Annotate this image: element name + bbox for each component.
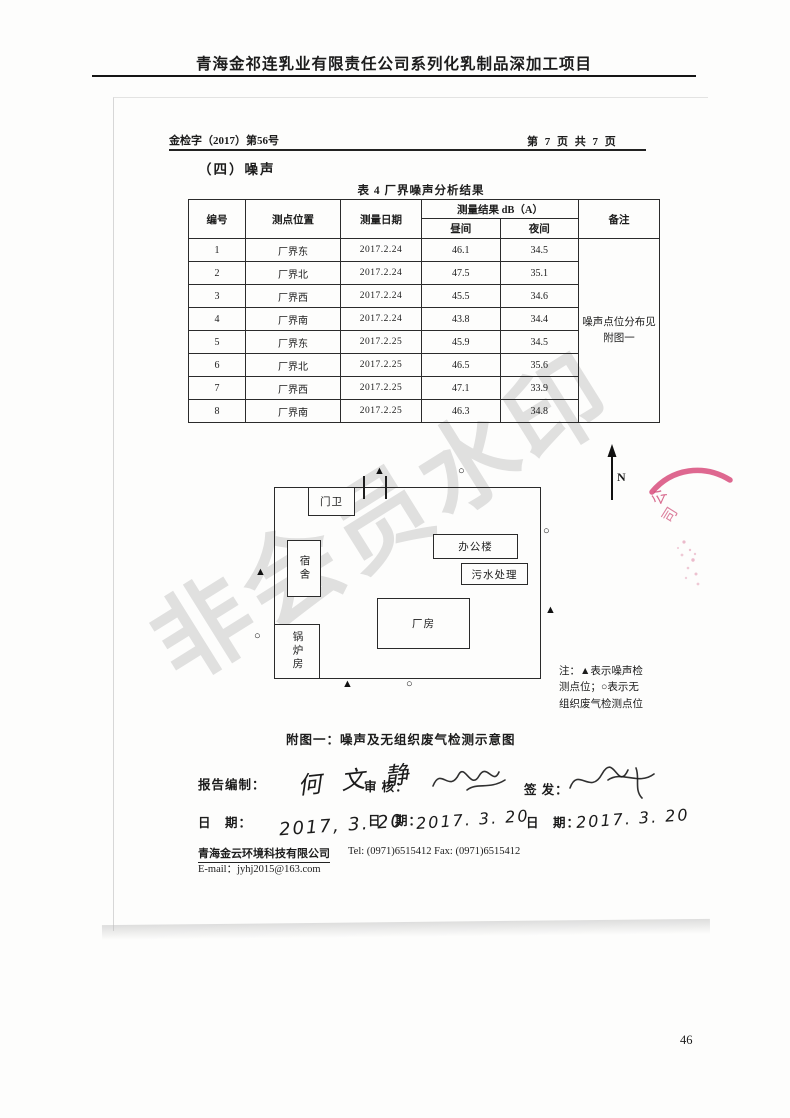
building-workshop: 厂房 — [377, 598, 470, 649]
cell-no: 4 — [189, 308, 246, 331]
col-header-night: 夜间 — [500, 219, 579, 239]
cell-day: 46.5 — [422, 354, 501, 377]
cell-no: 7 — [189, 377, 246, 400]
cell-night: 34.8 — [500, 400, 579, 423]
col-header-remark: 备注 — [579, 200, 660, 239]
cell-date: 2017.2.25 — [341, 377, 422, 400]
cell-no: 2 — [189, 262, 246, 285]
sewage-label: 污水处理 — [472, 567, 518, 582]
workshop-label: 厂房 — [412, 616, 435, 631]
cell-no: 1 — [189, 239, 246, 262]
noise-point-icon: ▲ — [545, 605, 556, 616]
cell-day: 45.5 — [422, 285, 501, 308]
cell-day: 47.1 — [422, 377, 501, 400]
building-gatehouse: 门卫 — [308, 487, 355, 516]
noise-analysis-table: 编号 测点位置 测量日期 测量结果 dB（A） 备注 昼间 夜间 1 厂界东 2… — [188, 199, 660, 423]
dormitory-label: 宿舍 — [297, 555, 312, 582]
date-label: 日 期： — [368, 810, 422, 829]
reviewer-label: 审 核： — [364, 776, 409, 795]
cell-date: 2017.2.24 — [341, 239, 422, 262]
cell-position: 厂界北 — [246, 354, 341, 377]
project-title: 青海金祁连乳业有限责任公司系列化乳制品深加工项目 — [92, 52, 696, 74]
red-seal-stamp: 公 司 — [638, 460, 790, 600]
cell-position: 厂界东 — [246, 331, 341, 354]
reviewer-signature — [427, 760, 513, 802]
cell-date: 2017.2.24 — [341, 308, 422, 331]
cell-day: 46.3 — [422, 400, 501, 423]
gate-bar — [385, 476, 387, 499]
office-label: 办公楼 — [458, 539, 493, 554]
page-indicator: 第 7 页 共 7 页 — [527, 133, 618, 149]
issuer-signature — [562, 758, 662, 808]
cell-day: 45.9 — [422, 331, 501, 354]
cell-night: 35.6 — [500, 354, 579, 377]
date-label: 日 期： — [526, 812, 580, 831]
building-office: 办公楼 — [433, 534, 518, 559]
cell-position: 厂界西 — [246, 285, 341, 308]
gas-point-icon: ○ — [406, 679, 413, 690]
document-number: 金检字（2017）第56号 — [169, 132, 279, 148]
noise-point-icon: ▲ — [342, 679, 353, 690]
cell-remark: 噪声点位分布见附图一 — [579, 239, 660, 423]
cell-date: 2017.2.24 — [341, 262, 422, 285]
cell-position: 厂界南 — [246, 400, 341, 423]
col-header-day: 昼间 — [422, 219, 501, 239]
review-date-handwritten: 2017. 3. 20 — [415, 806, 530, 833]
cell-day: 43.8 — [422, 308, 501, 331]
cell-no: 5 — [189, 331, 246, 354]
gate-bar — [363, 476, 365, 499]
cell-day: 46.1 — [422, 239, 501, 262]
cell-night: 34.6 — [500, 285, 579, 308]
noise-point-icon: ▲ — [255, 567, 266, 578]
header-rule — [169, 149, 646, 151]
cell-day: 47.5 — [422, 262, 501, 285]
building-boiler-room: 锅炉房 — [274, 624, 320, 679]
cell-position: 厂界东 — [246, 239, 341, 262]
cell-date: 2017.2.25 — [341, 400, 422, 423]
stamp-speckles — [677, 540, 700, 585]
cell-position: 厂界南 — [246, 308, 341, 331]
scanned-report-page: 金检字（2017）第56号 第 7 页 共 7 页 （四）噪声 表 4 厂界噪声… — [113, 97, 708, 931]
building-sewage-treatment: 污水处理 — [461, 563, 528, 585]
table-title: 表 4 厂界噪声分析结果 — [188, 182, 654, 198]
note-line: 测点位；○表示无 — [559, 680, 663, 696]
cell-date: 2017.2.25 — [341, 354, 422, 377]
cell-night: 34.5 — [500, 239, 579, 262]
cell-no: 3 — [189, 285, 246, 308]
gas-point-icon: ○ — [458, 466, 465, 477]
noise-point-icon: ▲ — [374, 466, 385, 477]
title-rule — [92, 75, 696, 77]
gas-point-icon: ○ — [543, 526, 550, 537]
cell-position: 厂界北 — [246, 262, 341, 285]
cell-date: 2017.2.24 — [341, 285, 422, 308]
table-row: 1 厂界东 2017.2.24 46.1 34.5 噪声点位分布见附图一 — [189, 239, 660, 262]
prepared-by-label: 报告编制： — [198, 774, 266, 793]
cell-night: 33.9 — [500, 377, 579, 400]
cell-night: 34.4 — [500, 308, 579, 331]
col-header-no: 编号 — [189, 200, 246, 239]
note-line: 注：▲表示噪声检 — [559, 664, 663, 680]
cell-night: 34.5 — [500, 331, 579, 354]
cell-position: 厂界西 — [246, 377, 341, 400]
cell-no: 8 — [189, 400, 246, 423]
col-header-position: 测点位置 — [246, 200, 341, 239]
gas-point-icon: ○ — [254, 631, 261, 642]
company-email: E-mail：jyhj2015@163.com — [198, 861, 321, 876]
cell-date: 2017.2.25 — [341, 331, 422, 354]
col-header-result-group: 测量结果 dB（A） — [422, 200, 579, 219]
cell-night: 35.1 — [500, 262, 579, 285]
gatehouse-label: 门卫 — [320, 494, 343, 509]
diagram-caption: 附图一：噪声及无组织废气检测示意图 — [286, 729, 516, 748]
note-line: 组织废气检测点位 — [559, 697, 663, 713]
diagram-legend-note: 注：▲表示噪声检 测点位；○表示无 组织废气检测点位 — [559, 664, 663, 713]
company-contact: Tel: (0971)6515412 Fax: (0971)6515412 — [348, 846, 520, 857]
building-dormitory: 宿舍 — [287, 540, 321, 597]
north-label: N — [617, 470, 626, 485]
issue-date-handwritten: 2017. 3. 20 — [575, 805, 690, 832]
section-heading-noise: （四）噪声 — [198, 158, 276, 178]
date-label: 日 期： — [198, 812, 252, 831]
boiler-label: 锅炉房 — [290, 631, 305, 672]
cell-no: 6 — [189, 354, 246, 377]
col-header-date: 测量日期 — [341, 200, 422, 239]
page-number: 46 — [680, 1033, 693, 1048]
